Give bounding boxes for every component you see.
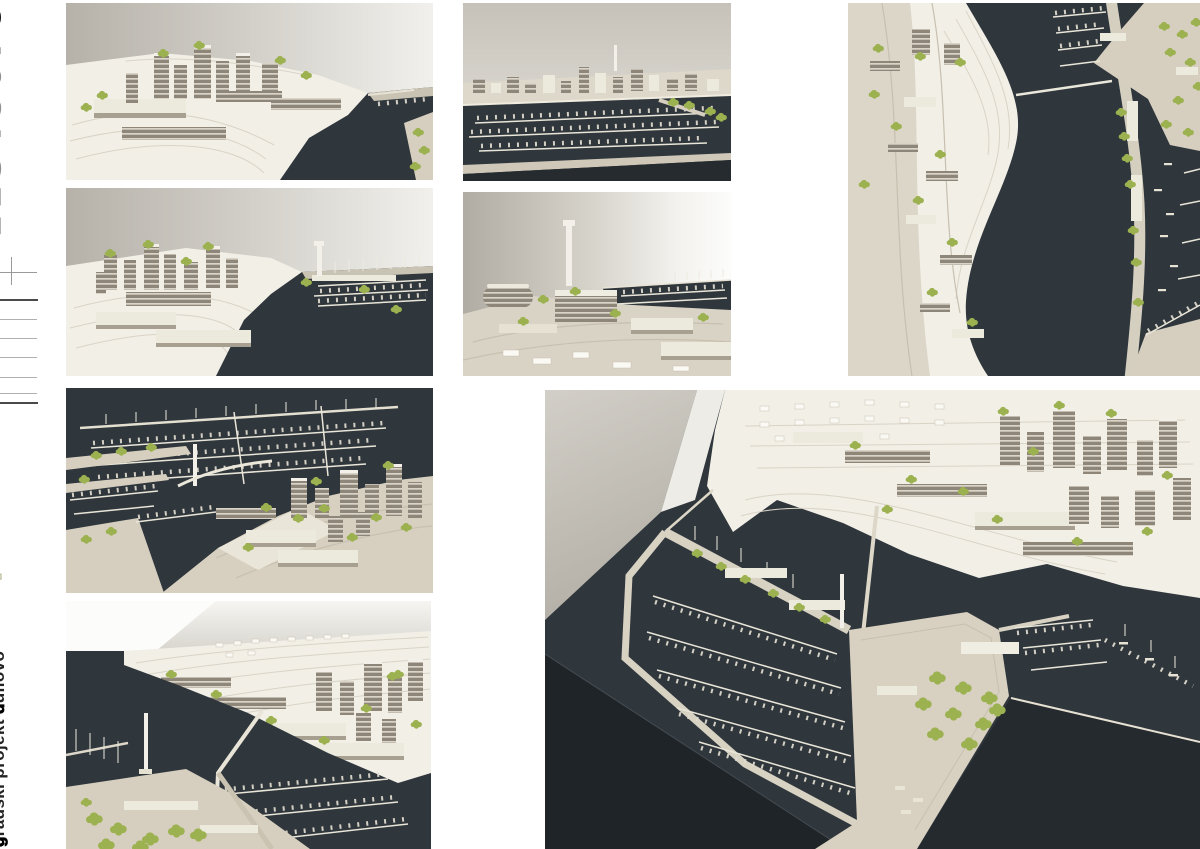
page-number-7: 7 [0, 28, 8, 58]
presentation-board: 12345678 split za 5 idejno urbanističko … [0, 0, 1200, 849]
page-number-8: 8 [0, 0, 8, 28]
photo-2-scene [66, 188, 433, 376]
photo-7-scene [848, 3, 1200, 376]
photo-5-scene [66, 388, 433, 593]
scale-mark [0, 377, 37, 378]
page-number-2: 2 [0, 177, 8, 207]
project-name-part: d [0, 703, 8, 714]
scale-mark [0, 393, 37, 394]
project-name: gradski projekt duilovo [0, 651, 9, 847]
photo-8-scene [545, 390, 1200, 849]
project-title: idejno urbanističko rješenje gradski pro… [0, 651, 9, 847]
logo-part: pli [0, 539, 2, 581]
registration-cross-icon [0, 272, 37, 273]
photo-model-03 [463, 3, 731, 181]
logo-part: 5 [0, 446, 2, 466]
scale-mark [0, 319, 37, 320]
photo-model-06 [66, 601, 431, 849]
logo-part: za [0, 466, 2, 525]
photo-model-08 [545, 390, 1200, 849]
page-number-4: 4 [0, 118, 8, 148]
logo-part: t [0, 525, 2, 539]
logo-part: s [0, 581, 2, 599]
scale-mark [0, 338, 37, 339]
project-name-part: uilovo [0, 651, 8, 703]
page-number-5: 5 [0, 88, 8, 118]
photo-4-scene [463, 192, 731, 376]
photo-6-scene [66, 601, 431, 849]
page-number-1: 1 [0, 207, 8, 237]
page-number-list: 12345678 [0, 0, 8, 237]
scale-mark [0, 357, 37, 358]
photo-model-07 [848, 3, 1200, 376]
project-name-part: g [0, 836, 8, 847]
photo-model-04 [463, 192, 731, 376]
photo-model-01 [66, 3, 433, 180]
project-name-part: radski projekt [0, 714, 8, 836]
page-number-6: 6 [0, 58, 8, 88]
photo-model-05 [66, 388, 433, 593]
scale-mark [0, 299, 38, 301]
scale-marks [0, 299, 38, 405]
photo-model-02 [66, 188, 433, 376]
registration-cross-icon [11, 257, 12, 285]
scale-mark [0, 402, 38, 404]
photo-1-scene [66, 3, 433, 180]
logo-split-za-5: split za 5 [0, 446, 6, 599]
page-number-3: 3 [0, 147, 8, 177]
photo-3-scene [463, 3, 731, 181]
